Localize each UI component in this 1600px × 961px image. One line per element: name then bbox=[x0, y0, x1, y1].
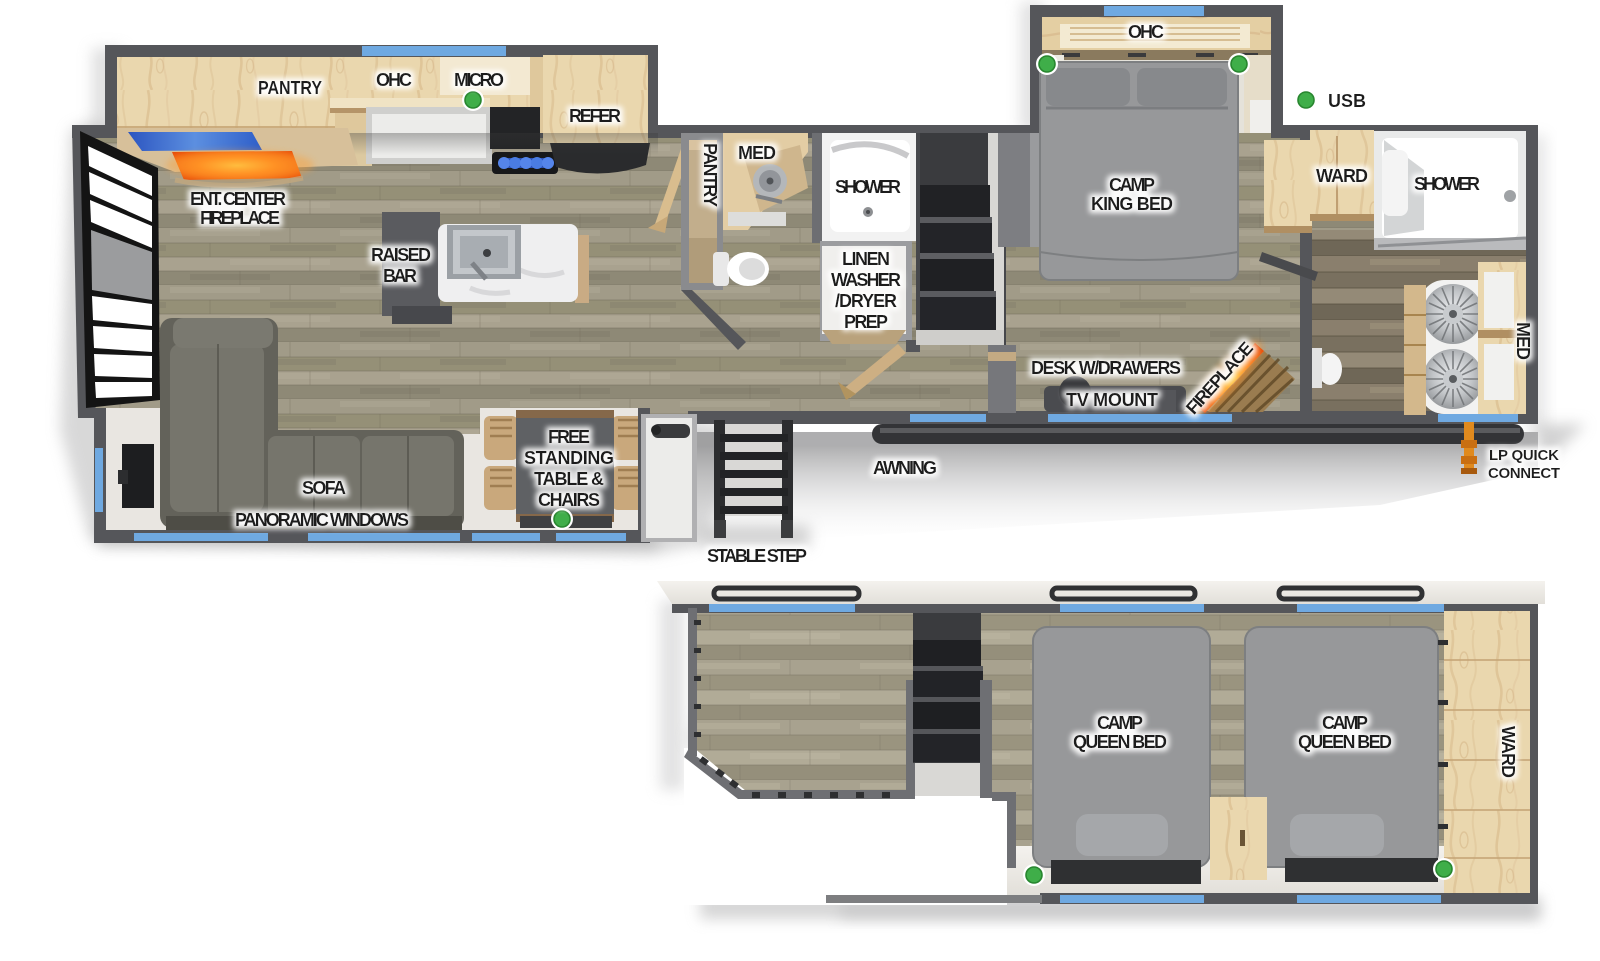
svg-text:PANTRY: PANTRY bbox=[258, 78, 322, 98]
svg-text:BAR: BAR bbox=[383, 266, 417, 286]
svg-text:PANTRY: PANTRY bbox=[700, 143, 720, 207]
svg-text:REFER: REFER bbox=[569, 106, 621, 126]
svg-text:PREP: PREP bbox=[844, 312, 888, 332]
svg-text:USB: USB bbox=[1328, 91, 1366, 111]
svg-text:WARD: WARD bbox=[1498, 726, 1518, 778]
svg-text:AWNING: AWNING bbox=[873, 458, 937, 478]
svg-text:WASHER: WASHER bbox=[831, 270, 901, 290]
svg-text:STANDING: STANDING bbox=[524, 448, 614, 468]
svg-text:LP QUICK: LP QUICK bbox=[1489, 447, 1559, 464]
svg-text:/DRYER: /DRYER bbox=[835, 291, 897, 311]
svg-text:FREE: FREE bbox=[548, 427, 590, 447]
svg-text:CHAIRS: CHAIRS bbox=[538, 490, 600, 510]
svg-text:TABLE &: TABLE & bbox=[534, 469, 604, 489]
svg-text:MICRO: MICRO bbox=[454, 70, 504, 90]
svg-text:SHOWER: SHOWER bbox=[1414, 174, 1480, 194]
svg-text:MED: MED bbox=[1513, 322, 1533, 360]
svg-text:CAMP: CAMP bbox=[1322, 713, 1368, 733]
svg-text:ENT. CENTER: ENT. CENTER bbox=[190, 189, 286, 209]
svg-text:LINEN: LINEN bbox=[842, 249, 890, 269]
svg-text:PANORAMIC WINDOWS: PANORAMIC WINDOWS bbox=[235, 510, 409, 530]
svg-text:KING BED: KING BED bbox=[1091, 194, 1173, 214]
svg-text:CAMP: CAMP bbox=[1109, 175, 1155, 195]
svg-text:FIREPLACE: FIREPLACE bbox=[200, 208, 280, 228]
svg-text:OHC: OHC bbox=[376, 70, 412, 90]
svg-text:SHOWER: SHOWER bbox=[835, 177, 901, 197]
svg-text:TV MOUNT: TV MOUNT bbox=[1066, 390, 1158, 410]
svg-text:QUEEN BED: QUEEN BED bbox=[1298, 732, 1392, 752]
svg-text:STABLE STEP: STABLE STEP bbox=[707, 546, 807, 566]
svg-text:RAISED: RAISED bbox=[371, 245, 431, 265]
svg-text:OHC: OHC bbox=[1128, 22, 1164, 42]
svg-text:CAMP: CAMP bbox=[1097, 713, 1143, 733]
svg-text:DESK W/DRAWERS: DESK W/DRAWERS bbox=[1031, 358, 1181, 378]
svg-text:CONNECT: CONNECT bbox=[1488, 465, 1560, 482]
svg-text:SOFA: SOFA bbox=[302, 478, 346, 498]
svg-text:QUEEN BED: QUEEN BED bbox=[1073, 732, 1167, 752]
svg-text:MED: MED bbox=[738, 143, 776, 163]
svg-text:WARD: WARD bbox=[1316, 166, 1368, 186]
